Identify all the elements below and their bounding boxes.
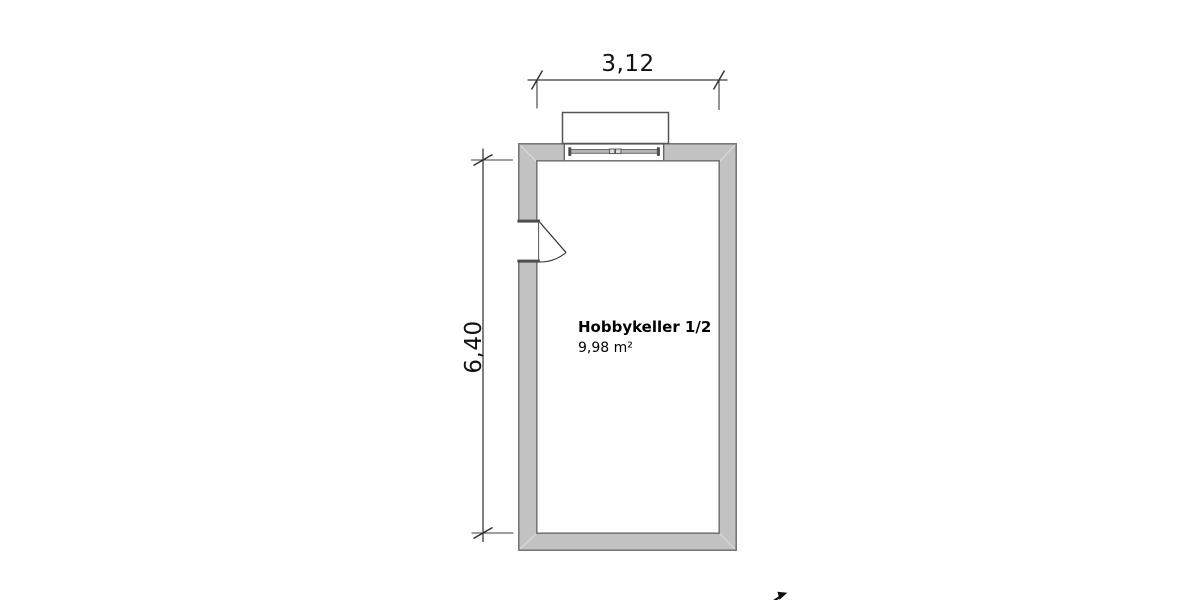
window-frame-end-right (657, 147, 660, 156)
door-swing-arc (540, 253, 566, 263)
room-label-block: Hobbykeller 1/2 9,98 m² (578, 318, 711, 356)
dimension-height-label: 6,40 (461, 320, 487, 373)
north-arrow-tip (769, 592, 787, 600)
window-symbol (563, 113, 669, 161)
door-opening (517, 221, 538, 262)
door-symbol (517, 220, 566, 263)
room-area: 9,98 m² (578, 340, 711, 356)
floor-plan-canvas: 3,12 6,40 Hobbykeller 1/2 9,98 m² (0, 0, 1200, 600)
door-cap-top (517, 220, 540, 223)
window-mullion-mark-left (609, 149, 614, 154)
window-sill-box (563, 113, 669, 144)
window-mullion-mark-right (616, 149, 621, 154)
floor-plan-drawing (0, 0, 1200, 600)
dimension-width-label: 3,12 (601, 51, 654, 77)
window-frame-end-left (568, 147, 571, 156)
door-cap-bottom (517, 260, 540, 263)
room-name: Hobbykeller 1/2 (578, 318, 711, 336)
door-leaf (540, 223, 566, 253)
